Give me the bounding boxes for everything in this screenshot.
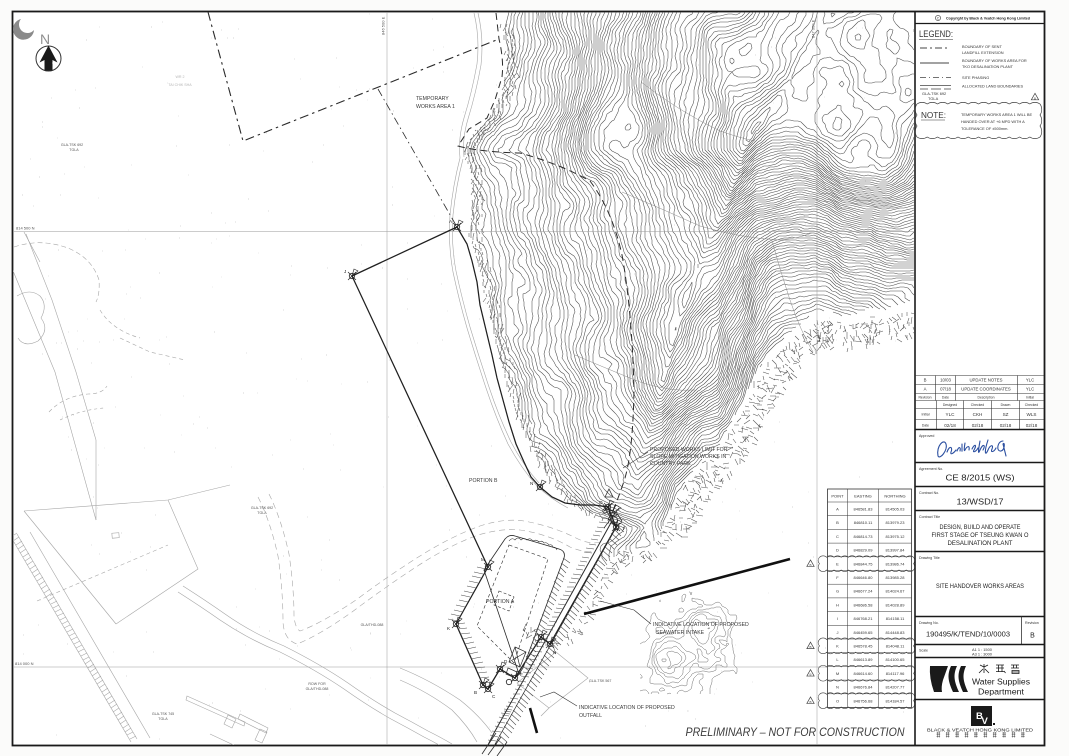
svg-text:WORKS AREA 1: WORKS AREA 1 — [416, 104, 455, 110]
svg-text:814117.96: 814117.96 — [886, 671, 905, 676]
svg-text:Revision: Revision — [1025, 621, 1039, 625]
svg-text:846677.24: 846677.24 — [854, 589, 874, 594]
svg-text:814 500 N: 814 500 N — [16, 226, 35, 231]
svg-text:Approved: Approved — [919, 434, 934, 438]
svg-text:814024.67: 814024.67 — [886, 589, 906, 594]
svg-text:GLA-TSK 692: GLA-TSK 692 — [251, 506, 273, 510]
svg-text:YLC: YLC — [1026, 378, 1034, 383]
svg-text:H: H — [553, 650, 556, 655]
svg-text:INDICATIVE LOCATION OF PROPOSE: INDICATIVE LOCATION OF PROPOSED — [579, 705, 675, 711]
svg-text:846810.11: 846810.11 — [854, 520, 873, 525]
svg-text:Agreement No.: Agreement No. — [919, 467, 943, 471]
svg-text:C: C — [937, 17, 940, 21]
svg-text:BOUNDARY OF WORKS AREA FOR: BOUNDARY OF WORKS AREA FOR — [962, 58, 1027, 63]
svg-text:ROW FOR: ROW FOR — [308, 682, 326, 686]
svg-text:K: K — [836, 644, 839, 649]
svg-text:TEMPORARY: TEMPORARY — [416, 96, 449, 102]
svg-text:B: B — [836, 520, 839, 525]
svg-text:Scale: Scale — [919, 649, 928, 653]
svg-text:TGLA: TGLA — [257, 511, 267, 515]
svg-text:N: N — [40, 31, 50, 47]
svg-text:CE 8/2015 (WS): CE 8/2015 (WS) — [946, 474, 1015, 483]
svg-text:POINT: POINT — [831, 493, 844, 498]
svg-text:PORTION A: PORTION A — [486, 599, 515, 605]
svg-text:N: N — [836, 685, 839, 690]
svg-text:846814.73: 846814.73 — [854, 534, 874, 539]
svg-text:V: V — [982, 716, 989, 727]
svg-text:I: I — [837, 616, 838, 621]
svg-text:814207.77: 814207.77 — [886, 685, 906, 690]
svg-text:G: G — [836, 589, 839, 594]
svg-text:813985.28: 813985.28 — [886, 575, 906, 580]
svg-text:WLS: WLS — [1027, 412, 1037, 417]
svg-text:INDICATIVE LOCATION OF PROPOSE: INDICATIVE LOCATION OF PROPOSED — [653, 622, 749, 628]
svg-text:PORTION B: PORTION B — [469, 478, 498, 484]
svg-text:846768.21: 846768.21 — [854, 616, 874, 621]
svg-text:B: B — [809, 563, 811, 567]
svg-text:TEMPORARY WORKS AREA 1 WILL BE: TEMPORARY WORKS AREA 1 WILL BE — [961, 112, 1032, 117]
svg-text:Checked: Checked — [1025, 403, 1038, 407]
svg-text:GLA/THD-088: GLA/THD-088 — [306, 687, 329, 691]
svg-text:SZ: SZ — [1003, 412, 1009, 417]
svg-text:J: J — [344, 269, 346, 274]
svg-text:C: C — [836, 534, 839, 539]
svg-text:10/03: 10/03 — [940, 378, 951, 383]
svg-text:UPDATE COORDINATES: UPDATE COORDINATES — [961, 387, 1011, 392]
svg-text:Designed: Designed — [943, 403, 957, 407]
svg-text:Contract No.: Contract No. — [919, 491, 939, 495]
svg-text:Drawing Title: Drawing Title — [919, 556, 940, 560]
svg-text:LANDFILL EXTENSION: LANDFILL EXTENSION — [962, 50, 1004, 55]
svg-text:Department: Department — [978, 687, 1025, 697]
svg-text:814 000 N: 814 000 N — [15, 661, 34, 666]
svg-text:M: M — [836, 671, 839, 676]
svg-text:814048.11: 814048.11 — [886, 644, 905, 649]
svg-text:O: O — [836, 698, 839, 703]
svg-text:COUNTRY PARK: COUNTRY PARK — [650, 461, 691, 467]
svg-text:Drawn: Drawn — [1001, 403, 1011, 407]
svg-text:GLA-TSK 567: GLA-TSK 567 — [589, 679, 611, 683]
svg-text:PRELIMINARY – NOT FOR CONSTRUC: PRELIMINARY – NOT FOR CONSTRUCTION — [686, 727, 906, 739]
svg-text:O: O — [599, 500, 603, 505]
svg-text:A3 1 : 3000: A3 1 : 3000 — [972, 652, 993, 657]
svg-text:SITE PHASING: SITE PHASING — [962, 75, 989, 80]
svg-text:B: B — [474, 690, 477, 695]
svg-text:B: B — [809, 645, 811, 649]
svg-text:Description: Description — [978, 395, 995, 399]
svg-text:Checked: Checked — [971, 403, 984, 407]
svg-text:B: B — [809, 673, 811, 677]
svg-text:814448.83: 814448.83 — [886, 630, 906, 635]
svg-text:Initial: Initial — [1026, 395, 1034, 399]
svg-text:HANDED OVER AT +6 MPD WITH A: HANDED OVER AT +6 MPD WITH A — [961, 119, 1025, 124]
svg-text:A: A — [836, 507, 839, 512]
svg-text:846 500 E: 846 500 E — [381, 16, 386, 35]
svg-text:Initial: Initial — [922, 413, 930, 417]
svg-text:847 000 E: 847 000 E — [811, 19, 816, 38]
svg-text:02/18: 02/18 — [1026, 423, 1038, 428]
svg-text:N: N — [530, 481, 533, 486]
svg-text:E: E — [836, 561, 839, 566]
svg-text:190495/K/TEND/10/0003: 190495/K/TEND/10/0003 — [926, 630, 1010, 639]
svg-text:846686.58: 846686.58 — [854, 602, 874, 607]
svg-text:SLOPE MITIGATION WORKS IN: SLOPE MITIGATION WORKS IN — [650, 454, 727, 460]
svg-text:DESALINATION PLANT: DESALINATION PLANT — [948, 540, 1013, 547]
svg-text:814028.89: 814028.89 — [886, 602, 906, 607]
svg-text:WR 2: WR 2 — [176, 75, 185, 79]
svg-text:TAI CHIK SHA: TAI CHIK SHA — [168, 83, 192, 87]
svg-text:CKH: CKH — [973, 412, 983, 417]
svg-text:02/18: 02/18 — [972, 423, 984, 428]
svg-text:Water Supplies: Water Supplies — [972, 677, 1030, 687]
svg-text:BLACK & VEATCH HONG KONG LIMIT: BLACK & VEATCH HONG KONG LIMITED — [927, 728, 1034, 733]
svg-text:NOTE:: NOTE: — [921, 111, 946, 120]
svg-text:GLA-TSK 692: GLA-TSK 692 — [61, 143, 83, 147]
svg-text:NORTHING: NORTHING — [884, 493, 905, 498]
svg-text:B: B — [924, 378, 927, 383]
svg-text:BOUNDARY OF SENT: BOUNDARY OF SENT — [962, 44, 1002, 49]
svg-text:ALLOCATED LAND BOUNDARIES: ALLOCATED LAND BOUNDARIES — [962, 84, 1024, 89]
svg-text:F: F — [520, 672, 523, 677]
svg-text:G: G — [534, 628, 538, 633]
svg-text:814184.57: 814184.57 — [886, 698, 906, 703]
svg-text:A: A — [924, 387, 927, 392]
svg-text:846756.68: 846756.68 — [854, 698, 874, 703]
svg-text:Drawing No.: Drawing No. — [919, 621, 939, 625]
svg-text:846829.09: 846829.09 — [854, 548, 874, 553]
svg-text:TGLA: TGLA — [158, 717, 168, 721]
svg-text:YLC: YLC — [1026, 387, 1034, 392]
svg-text:SITE HANDOVER WORKS AREAS: SITE HANDOVER WORKS AREAS — [936, 583, 1024, 590]
svg-text:DESIGN, BUILD AND OPERATE: DESIGN, BUILD AND OPERATE — [940, 524, 1021, 531]
svg-text:SEAWATER INTAKE: SEAWATER INTAKE — [656, 630, 705, 636]
svg-text:846613.89: 846613.89 — [854, 657, 874, 662]
svg-text:Copyright by Black & Veatch Ho: Copyright by Black & Veatch Hong Kong Li… — [946, 16, 1030, 20]
svg-text:YLC: YLC — [946, 412, 956, 417]
svg-text:846578.45: 846578.45 — [854, 644, 874, 649]
svg-text:813997.84: 813997.84 — [886, 548, 906, 553]
svg-text:OUTFALL: OUTFALL — [579, 713, 602, 719]
svg-text:846844.75: 846844.75 — [854, 561, 874, 566]
svg-text:13/WSD/17: 13/WSD/17 — [957, 498, 1005, 507]
svg-text:02/18: 02/18 — [1000, 423, 1012, 428]
svg-text:846646.80: 846646.80 — [854, 575, 874, 580]
svg-text:PROPOSED WORKS LIMIT FOR: PROPOSED WORKS LIMIT FOR — [650, 447, 728, 453]
svg-text:Revision: Revision — [918, 395, 931, 399]
svg-text:TOLERANCE OF ±500mm.: TOLERANCE OF ±500mm. — [961, 126, 1008, 131]
svg-text:LEGEND:: LEGEND: — [919, 29, 953, 39]
svg-text:EASTING: EASTING — [854, 493, 872, 498]
svg-text:846581.83: 846581.83 — [854, 507, 874, 512]
svg-text:TGLA: TGLA — [69, 148, 79, 152]
svg-text:B: B — [1034, 96, 1036, 100]
svg-text:814158.11: 814158.11 — [886, 616, 905, 621]
svg-text:UPDATE NOTES: UPDATE NOTES — [969, 378, 1002, 383]
svg-text:846459.65: 846459.65 — [854, 630, 874, 635]
svg-text:GLA-TSK 745: GLA-TSK 745 — [152, 712, 174, 716]
svg-text:Date: Date — [922, 424, 929, 428]
svg-text:814505.03: 814505.03 — [886, 507, 906, 512]
svg-text:D: D — [836, 548, 839, 553]
svg-text:Contract Title: Contract Title — [919, 515, 940, 519]
svg-text:814100.65: 814100.65 — [886, 657, 906, 662]
svg-text:813979.23: 813979.23 — [886, 520, 906, 525]
svg-text:B: B — [1030, 633, 1035, 640]
svg-text:H: H — [836, 602, 839, 607]
svg-text:M: M — [481, 557, 485, 562]
svg-text:FIRST STAGE OF TSEUNG KWAN O: FIRST STAGE OF TSEUNG KWAN O — [932, 532, 1029, 539]
svg-text:B: B — [809, 700, 811, 704]
svg-text:I: I — [623, 526, 624, 531]
svg-text:TGLA: TGLA — [928, 96, 939, 101]
svg-text:813975.12: 813975.12 — [886, 534, 906, 539]
svg-text:TKO DESALINATION PLANT: TKO DESALINATION PLANT — [962, 64, 1014, 69]
svg-text:846614.60: 846614.60 — [854, 671, 874, 676]
svg-text:02/18: 02/18 — [944, 423, 956, 428]
svg-text:07/18: 07/18 — [940, 387, 951, 392]
svg-text:J: J — [837, 630, 839, 635]
svg-text:Date: Date — [942, 395, 949, 399]
svg-text:846676.84: 846676.84 — [854, 685, 874, 690]
svg-text:813986.74: 813986.74 — [886, 561, 906, 566]
svg-text:GLA/THD-088: GLA/THD-088 — [361, 623, 384, 627]
